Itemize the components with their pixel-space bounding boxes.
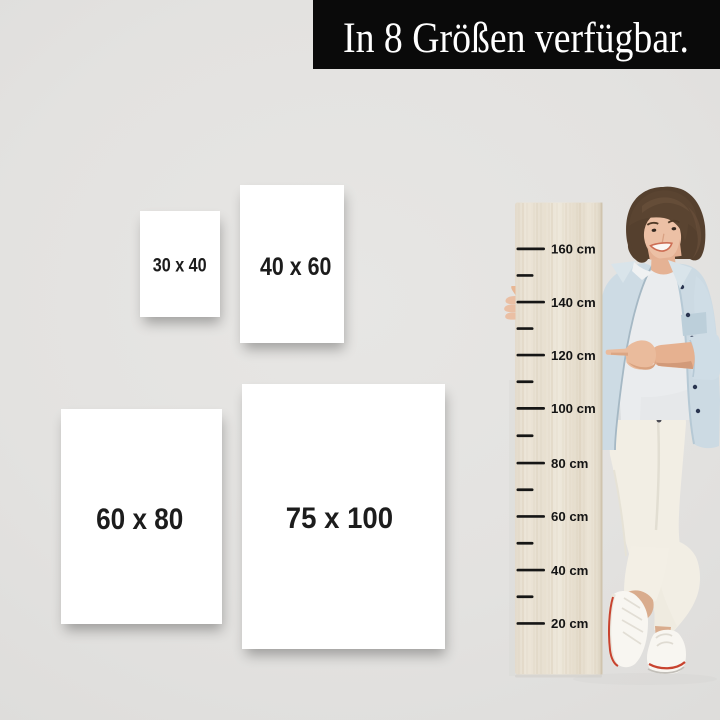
svg-text:40 cm: 40 cm — [551, 563, 588, 578]
svg-text:20 cm: 20 cm — [551, 616, 588, 631]
svg-text:140 cm: 140 cm — [551, 295, 596, 310]
svg-text:120 cm: 120 cm — [551, 348, 596, 363]
svg-text:100 cm: 100 cm — [551, 401, 596, 416]
svg-text:60 cm: 60 cm — [551, 509, 588, 524]
svg-text:160 cm: 160 cm — [551, 242, 596, 257]
svg-text:80 cm: 80 cm — [551, 456, 588, 471]
